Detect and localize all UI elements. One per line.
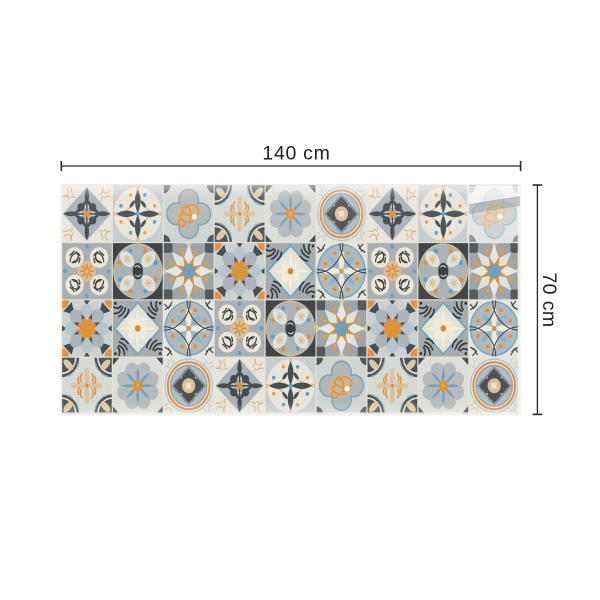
svg-text:140 cm: 140 cm [262,143,330,165]
svg-text:70 cm: 70 cm [538,272,560,327]
